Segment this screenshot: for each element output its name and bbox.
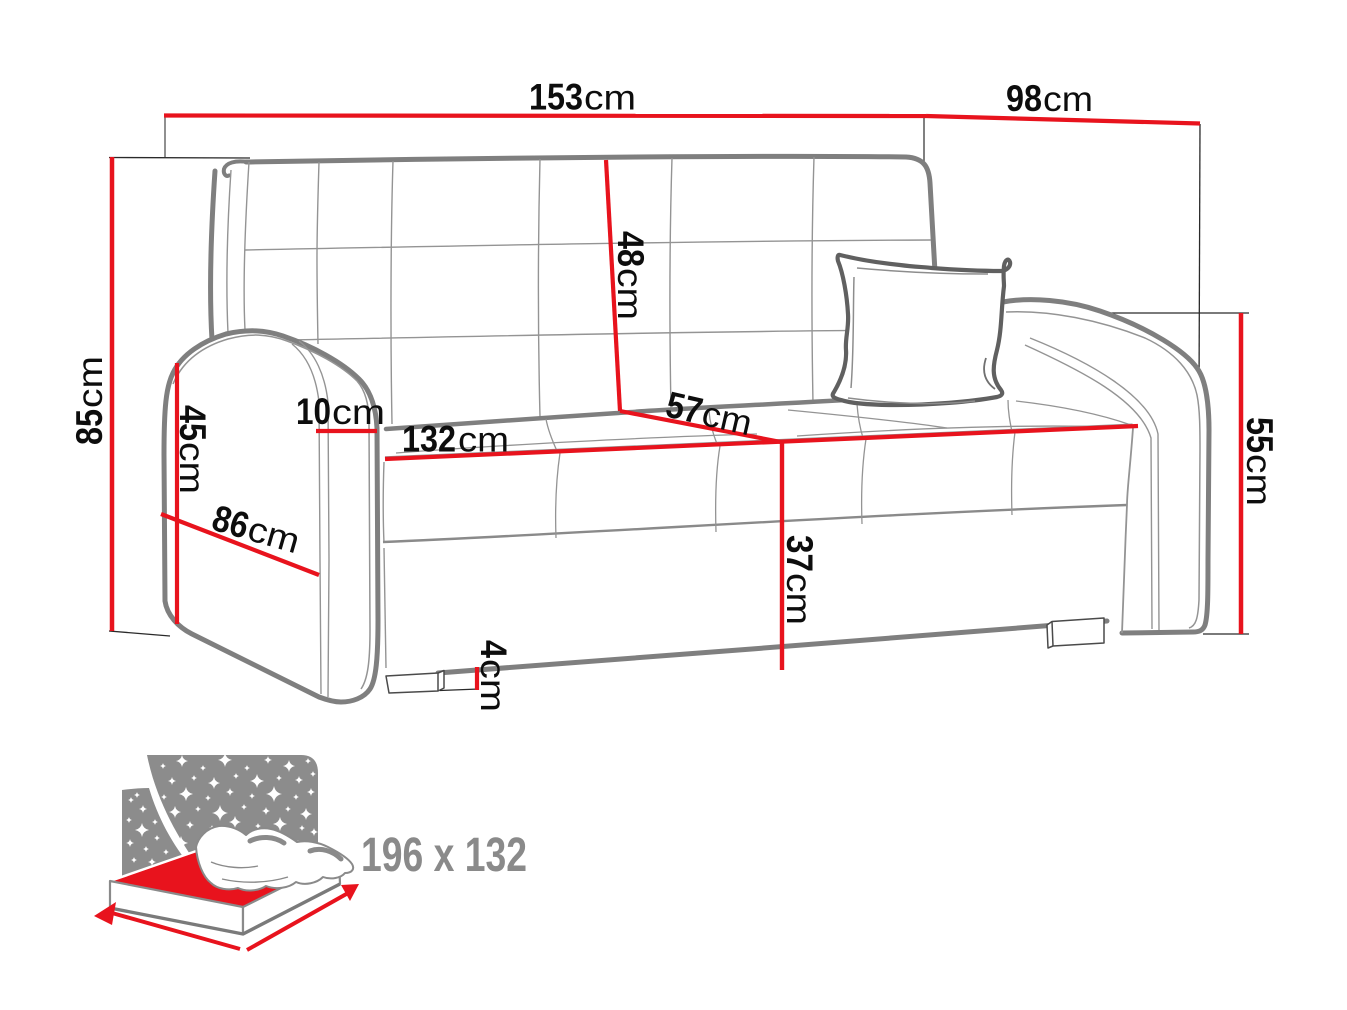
svg-text:45: 45 <box>172 405 213 441</box>
svg-text:cm: cm <box>458 421 509 460</box>
svg-text:cm: cm <box>584 79 636 118</box>
svg-text:98: 98 <box>1006 78 1042 119</box>
svg-text:cm: cm <box>473 659 512 712</box>
svg-text:153: 153 <box>529 77 583 118</box>
svg-text:cm: cm <box>610 268 649 320</box>
svg-text:48: 48 <box>610 231 651 267</box>
svg-text:85: 85 <box>69 409 110 445</box>
svg-text:196 x 132: 196 x 132 <box>361 829 527 882</box>
svg-text:4: 4 <box>473 640 514 658</box>
svg-text:cm: cm <box>1239 454 1278 506</box>
svg-text:cm: cm <box>71 356 110 408</box>
svg-text:cm: cm <box>172 442 211 494</box>
svg-text:37: 37 <box>779 535 820 572</box>
svg-text:55: 55 <box>1239 417 1280 453</box>
svg-text:cm: cm <box>779 573 818 625</box>
svg-text:10: 10 <box>296 391 331 432</box>
svg-text:132: 132 <box>402 419 456 460</box>
svg-text:cm: cm <box>1043 80 1093 119</box>
svg-text:cm: cm <box>332 393 385 432</box>
